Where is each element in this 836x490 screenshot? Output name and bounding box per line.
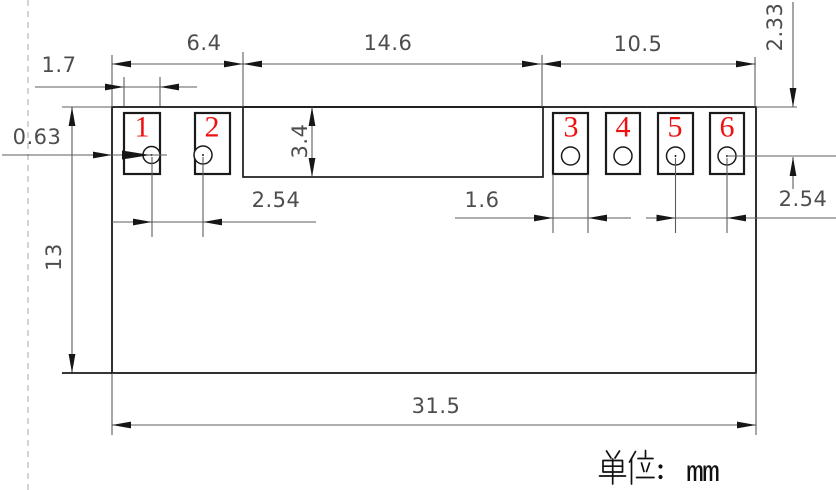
unit-colon-dot bbox=[658, 464, 662, 468]
dimension-arrowhead bbox=[133, 219, 152, 226]
pad-number-5: 5 bbox=[668, 111, 683, 144]
dimension-arrowhead bbox=[112, 61, 131, 68]
dimension-arrowhead bbox=[542, 61, 561, 68]
dimension-arrowhead bbox=[737, 422, 756, 429]
dimension-arrowhead bbox=[203, 219, 222, 226]
dimension-lines bbox=[2, 2, 836, 435]
unit-cjk-glyph-stroke bbox=[642, 463, 645, 472]
dimension-arrowhead bbox=[105, 84, 124, 91]
pad-hole-center-mark-2 bbox=[202, 154, 204, 156]
dim-label-dim-3-4: 3.4 bbox=[288, 124, 312, 159]
dimension-arrowhead bbox=[588, 215, 607, 222]
dimension-arrowhead bbox=[160, 84, 179, 91]
pad-hole-center-mark-5 bbox=[675, 155, 677, 157]
unit-note: mm bbox=[600, 451, 720, 490]
dim-label-dim-6-4: 6.4 bbox=[187, 31, 222, 55]
dim-label-dim-1-7: 1.7 bbox=[42, 53, 77, 77]
relay-footprint-drawing: 1234566.414.610.51.70.633.4132.332.541.6… bbox=[0, 0, 836, 490]
unit-cjk-glyph-stroke bbox=[647, 463, 650, 472]
drawing-svg: 1234566.414.610.51.70.633.4132.332.541.6… bbox=[0, 0, 836, 490]
dim-label-dim-1-6: 1.6 bbox=[465, 188, 500, 212]
dim-label-dim-2-33: 2.33 bbox=[763, 3, 787, 52]
pad-number-1: 1 bbox=[135, 111, 150, 144]
dimension-arrowhead bbox=[243, 61, 262, 68]
dimension-arrowhead bbox=[657, 215, 676, 222]
pad-hole-3 bbox=[562, 147, 580, 165]
unit-colon-dot bbox=[658, 475, 662, 479]
dimension-arrowhead bbox=[69, 354, 76, 373]
dim-label-dim-10-5: 10.5 bbox=[614, 32, 663, 56]
dim-label-dim-2-54-right: 2.54 bbox=[779, 187, 828, 211]
dim-label-dim-31-5: 31.5 bbox=[412, 394, 461, 418]
unit-cjk-glyph-stroke bbox=[615, 451, 620, 458]
unit-cjk-glyph-stroke bbox=[630, 452, 636, 463]
dim-label-dim-0-63: 0.63 bbox=[13, 125, 62, 149]
dimension-arrowhead bbox=[534, 215, 553, 222]
pad-hole-4 bbox=[614, 147, 632, 165]
pad-number-2: 2 bbox=[205, 111, 220, 144]
dimension-arrowhead bbox=[112, 422, 131, 429]
dimension-arrowhead bbox=[727, 215, 746, 222]
dimension-arrowhead bbox=[522, 61, 541, 68]
dimension-arrowhead bbox=[93, 152, 112, 159]
unit-mm-text: mm bbox=[686, 457, 719, 490]
pad-number-4: 4 bbox=[616, 111, 631, 144]
dimension-arrowhead bbox=[224, 61, 243, 68]
dimension-arrowhead bbox=[69, 107, 76, 126]
dimension-arrowhead bbox=[309, 107, 316, 126]
dimension-arrowhead bbox=[736, 61, 755, 68]
dimension-arrowhead bbox=[790, 157, 797, 176]
unit-cjk-glyph-stroke bbox=[607, 451, 612, 458]
dimension-arrowhead bbox=[309, 158, 316, 177]
pads: 123456 bbox=[124, 111, 744, 175]
pad-number-3: 3 bbox=[564, 111, 579, 144]
dim-label-dim-14-6: 14.6 bbox=[364, 31, 413, 55]
dimension-labels: 6.414.610.51.70.633.4132.332.541.62.5431… bbox=[13, 3, 828, 418]
pad-number-6: 6 bbox=[720, 111, 735, 144]
dim-label-dim-13: 13 bbox=[42, 243, 66, 271]
dim-label-dim-2-54-left: 2.54 bbox=[252, 188, 301, 212]
dimension-arrowhead bbox=[790, 88, 797, 107]
